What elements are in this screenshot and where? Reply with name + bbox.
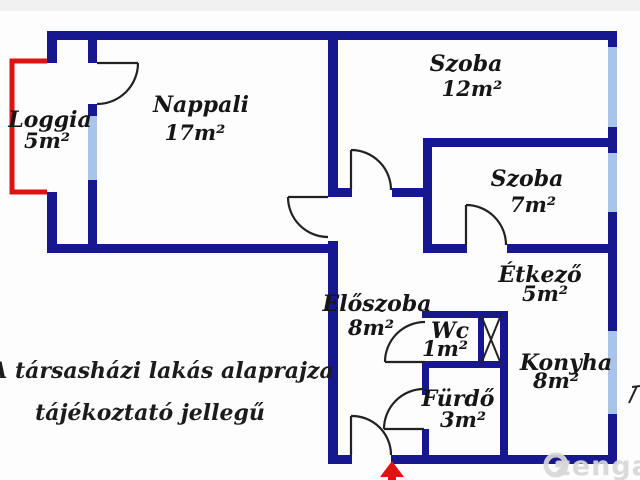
- wall-segment: [423, 138, 617, 147]
- wall-segment: [608, 31, 617, 47]
- wall-segment: [392, 188, 428, 197]
- wall-segment: [423, 244, 467, 253]
- room-label-szoba-7: Szoba: [491, 166, 564, 192]
- room-area-konyha: 8m²: [532, 368, 579, 393]
- room-area-furdo: 3m²: [440, 407, 486, 432]
- floorplan-image: Loggia 5m² Nappali 17m² Szoba 12m² Szoba…: [0, 0, 640, 480]
- window-szoba12: [608, 47, 617, 127]
- room-area-etkezo: 5m²: [522, 281, 568, 306]
- room-label-eloszoba: Előszoba: [322, 291, 432, 317]
- wall-segment: [422, 361, 508, 368]
- wall-segment: [328, 241, 338, 456]
- room-area-eloszoba: 8m²: [347, 315, 394, 340]
- wall-segment: [328, 40, 338, 197]
- top-edge-band: [0, 0, 640, 11]
- wall-segment: [422, 429, 429, 455]
- wall-segment: [608, 127, 617, 153]
- wall-segment: [608, 212, 617, 331]
- watermark-text: zenga: [555, 451, 640, 480]
- disclaimer-line-1: A társasházi lakás alaprajza: [0, 358, 334, 384]
- room-area-loggia: 5m²: [24, 128, 70, 153]
- room-area-nappali: 17m²: [165, 120, 226, 145]
- wall-segment: [88, 180, 97, 253]
- floorplan-svg: Loggia 5m² Nappali 17m² Szoba 12m² Szoba…: [0, 0, 640, 480]
- wall-segment: [423, 138, 432, 253]
- wall-segment: [47, 31, 57, 63]
- wall-segment: [500, 311, 508, 464]
- wall-segment: [507, 244, 617, 253]
- wall-segment: [422, 311, 508, 318]
- room-area-szoba-7: 7m²: [510, 192, 556, 217]
- room-area-szoba-12: 12m²: [442, 76, 503, 101]
- room-label-nappali: Nappali: [152, 92, 249, 118]
- room-label-szoba-12: Szoba: [430, 51, 503, 77]
- wall-segment: [328, 455, 352, 464]
- disclaimer-line-2: tájékoztató jellegű: [35, 400, 265, 426]
- room-area-wc: 1m²: [422, 336, 468, 361]
- watermark: zenga: [546, 451, 640, 480]
- wall-segment: [47, 192, 57, 253]
- window-szoba7: [608, 153, 617, 212]
- wall-segment: [47, 31, 617, 40]
- wall-segment: [88, 40, 97, 63]
